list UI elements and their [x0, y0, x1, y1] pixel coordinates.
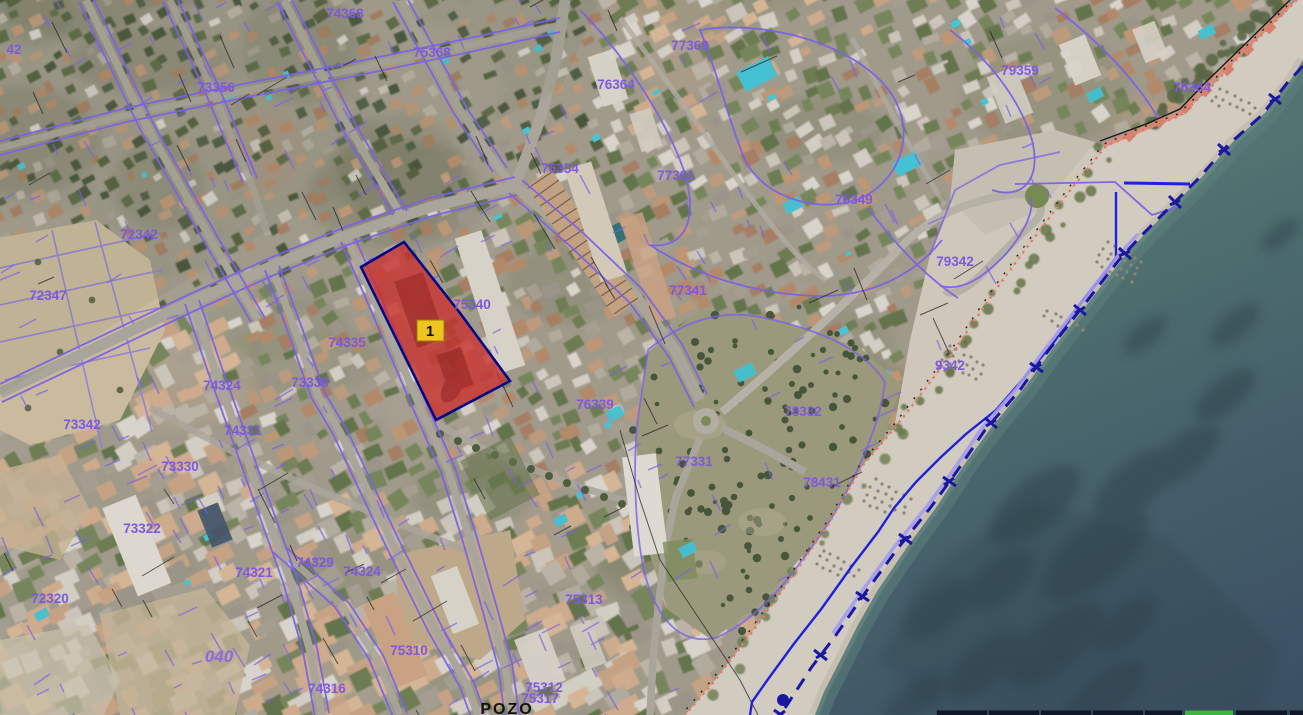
svg-text:74316: 74316 — [308, 681, 346, 696]
svg-text:73339: 73339 — [291, 375, 329, 390]
svg-text:73356: 73356 — [197, 80, 235, 95]
svg-text:78431: 78431 — [803, 475, 841, 490]
svg-text:74321: 74321 — [235, 565, 273, 580]
svg-text:75368: 75368 — [413, 45, 451, 60]
svg-text:74335: 74335 — [328, 335, 366, 350]
svg-text:73342: 73342 — [63, 417, 101, 432]
svg-text:79359: 79359 — [1001, 63, 1039, 78]
svg-text:74324: 74324 — [203, 378, 241, 393]
svg-text:76349: 76349 — [835, 192, 873, 207]
svg-text:72347: 72347 — [29, 288, 67, 303]
svg-text:42: 42 — [6, 42, 21, 57]
svg-text:76364: 76364 — [597, 77, 635, 92]
svg-text:73322: 73322 — [123, 521, 161, 536]
svg-text:74324: 74324 — [343, 564, 381, 579]
svg-text:77341: 77341 — [669, 283, 707, 298]
svg-text:76364: 76364 — [1173, 80, 1211, 95]
svg-text:75313: 75313 — [565, 592, 603, 607]
svg-text:76339: 76339 — [576, 397, 614, 412]
svg-text:73330: 73330 — [161, 459, 199, 474]
svg-text:9342: 9342 — [935, 358, 965, 373]
svg-text:74368: 74368 — [326, 6, 364, 21]
svg-text:1: 1 — [426, 323, 434, 340]
svg-text:72320: 72320 — [31, 591, 69, 606]
svg-text:79342: 79342 — [936, 254, 974, 269]
svg-text:72342: 72342 — [120, 227, 158, 242]
svg-text:77369: 77369 — [671, 38, 709, 53]
svg-text:78332: 78332 — [784, 404, 822, 419]
svg-text:75340: 75340 — [453, 297, 491, 312]
svg-text:040: 040 — [205, 647, 234, 666]
svg-text:75310: 75310 — [390, 643, 428, 658]
svg-text:76354: 76354 — [541, 161, 579, 176]
svg-text:77331: 77331 — [675, 454, 713, 469]
svg-text:75317: 75317 — [521, 691, 559, 706]
svg-text:74329: 74329 — [296, 555, 334, 570]
svg-text:77361: 77361 — [657, 168, 695, 183]
svg-text:74331: 74331 — [224, 423, 262, 438]
